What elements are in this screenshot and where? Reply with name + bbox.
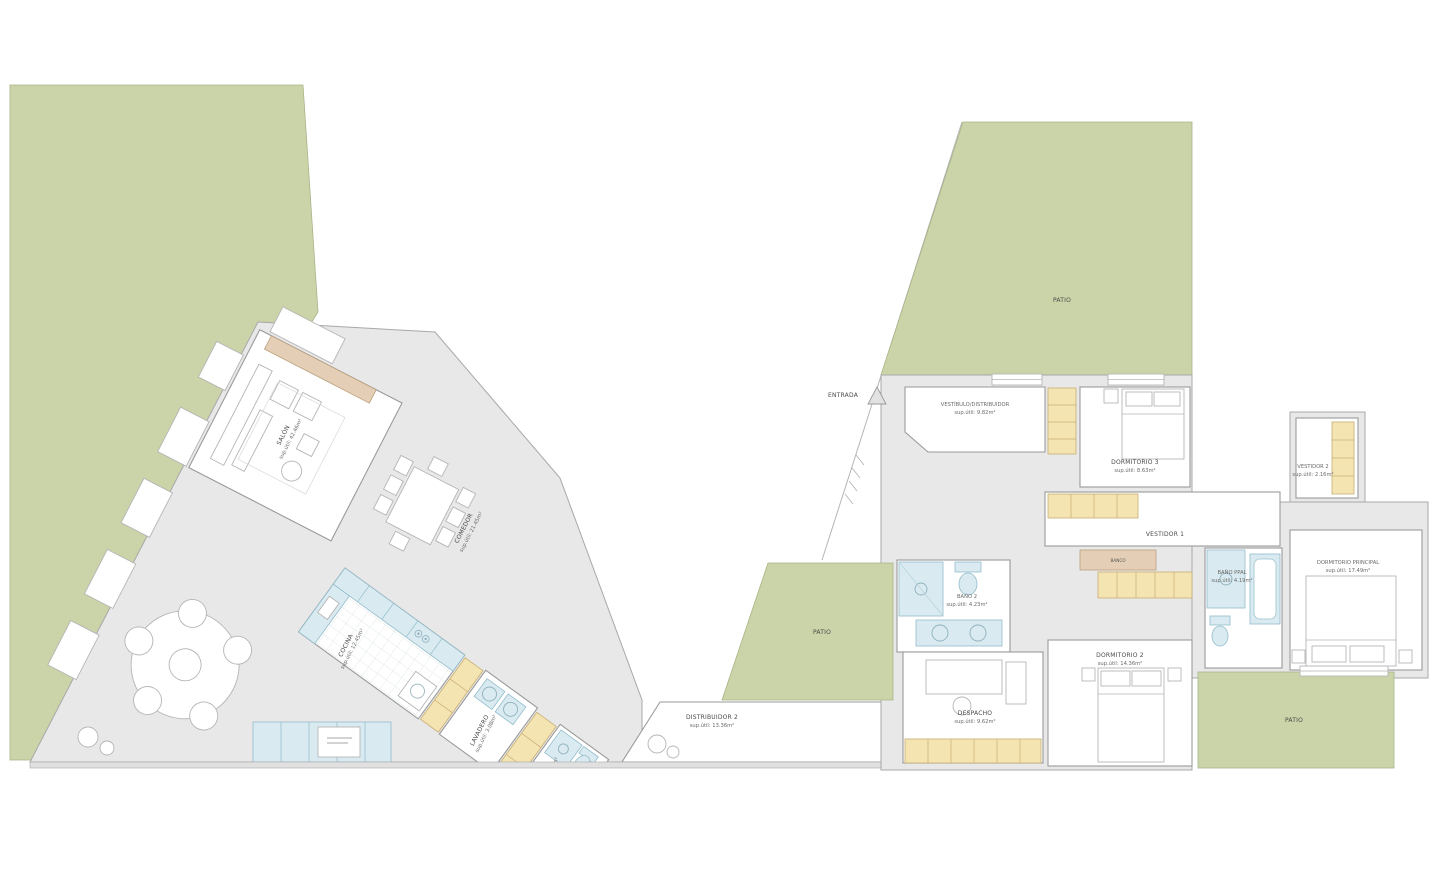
wardrobe-icon: [905, 739, 1041, 763]
floor-plan-page: SALÓN sup.útil: 42.46m² COMEDOR sup.útil…: [0, 0, 1440, 893]
banoppal-area: sup.útil: 4.19m²: [1211, 577, 1252, 584]
toilet-icon: [1210, 616, 1230, 646]
wardrobe-icon: [1048, 494, 1138, 518]
despacho-label: DESPACHO: [958, 710, 993, 717]
entrance-label: ENTRADA: [828, 392, 859, 399]
dormppal-area: sup.útil: 17.49m²: [1326, 567, 1371, 574]
shower-icon: [899, 562, 943, 616]
vestibulo-room: [905, 387, 1045, 452]
floor-plan-svg: SALÓN sup.útil: 42.46m² COMEDOR sup.útil…: [0, 0, 1440, 893]
bathtub-icon: [1250, 554, 1280, 624]
dormitorio2-area: sup.útil: 14.36m²: [1098, 660, 1143, 667]
vestidor2-label: VESTIDOR 2: [1297, 464, 1328, 470]
vestibulo-area: sup.útil: 9.82m²: [954, 409, 995, 416]
distribuidor2-room: [622, 702, 895, 762]
bed-icon: [1292, 576, 1412, 666]
banoppal-label: BAÑO PPAL: [1217, 569, 1246, 576]
dormppal-label: DORMITORIO PRINCIPAL: [1317, 560, 1379, 566]
bench-label: BANCO: [1110, 558, 1126, 563]
patio-bottom-label: PATIO: [1285, 717, 1303, 724]
vestibulo-label: VESTÍBULO/DISTRIBUIDOR: [941, 401, 1010, 408]
dormitorio3-label: DORMITORIO 3: [1111, 459, 1159, 466]
patio-middle-label: PATIO: [813, 629, 831, 636]
wardrobe-icon: [1332, 422, 1354, 494]
bano2-area: sup.útil: 4.23m²: [946, 601, 987, 608]
vestidor2-area: sup.útil: 2.16m²: [1292, 471, 1333, 478]
dormitorio2-label: DORMITORIO 2: [1096, 652, 1144, 659]
wardrobe-icon: [1098, 572, 1192, 598]
wardrobe-icon: [1048, 388, 1076, 454]
despacho-area: sup.útil: 9.62m²: [954, 718, 995, 725]
bano2-label: BAÑO 2: [957, 593, 977, 600]
bench-icon: BANCO: [1080, 550, 1156, 570]
distribuidor2-label: DISTRIBUIDOR 2: [686, 714, 738, 721]
patio-top-label: PATIO: [1053, 297, 1071, 304]
sink-icon: [916, 620, 1002, 646]
kitchen-counter-icon: [253, 722, 391, 762]
distribuidor2-area: sup.útil: 13.36m²: [690, 722, 735, 729]
dormitorio3-area: sup.útil: 8.63m²: [1114, 467, 1155, 474]
vestidor1-label: VESTIDOR 1: [1146, 531, 1184, 538]
